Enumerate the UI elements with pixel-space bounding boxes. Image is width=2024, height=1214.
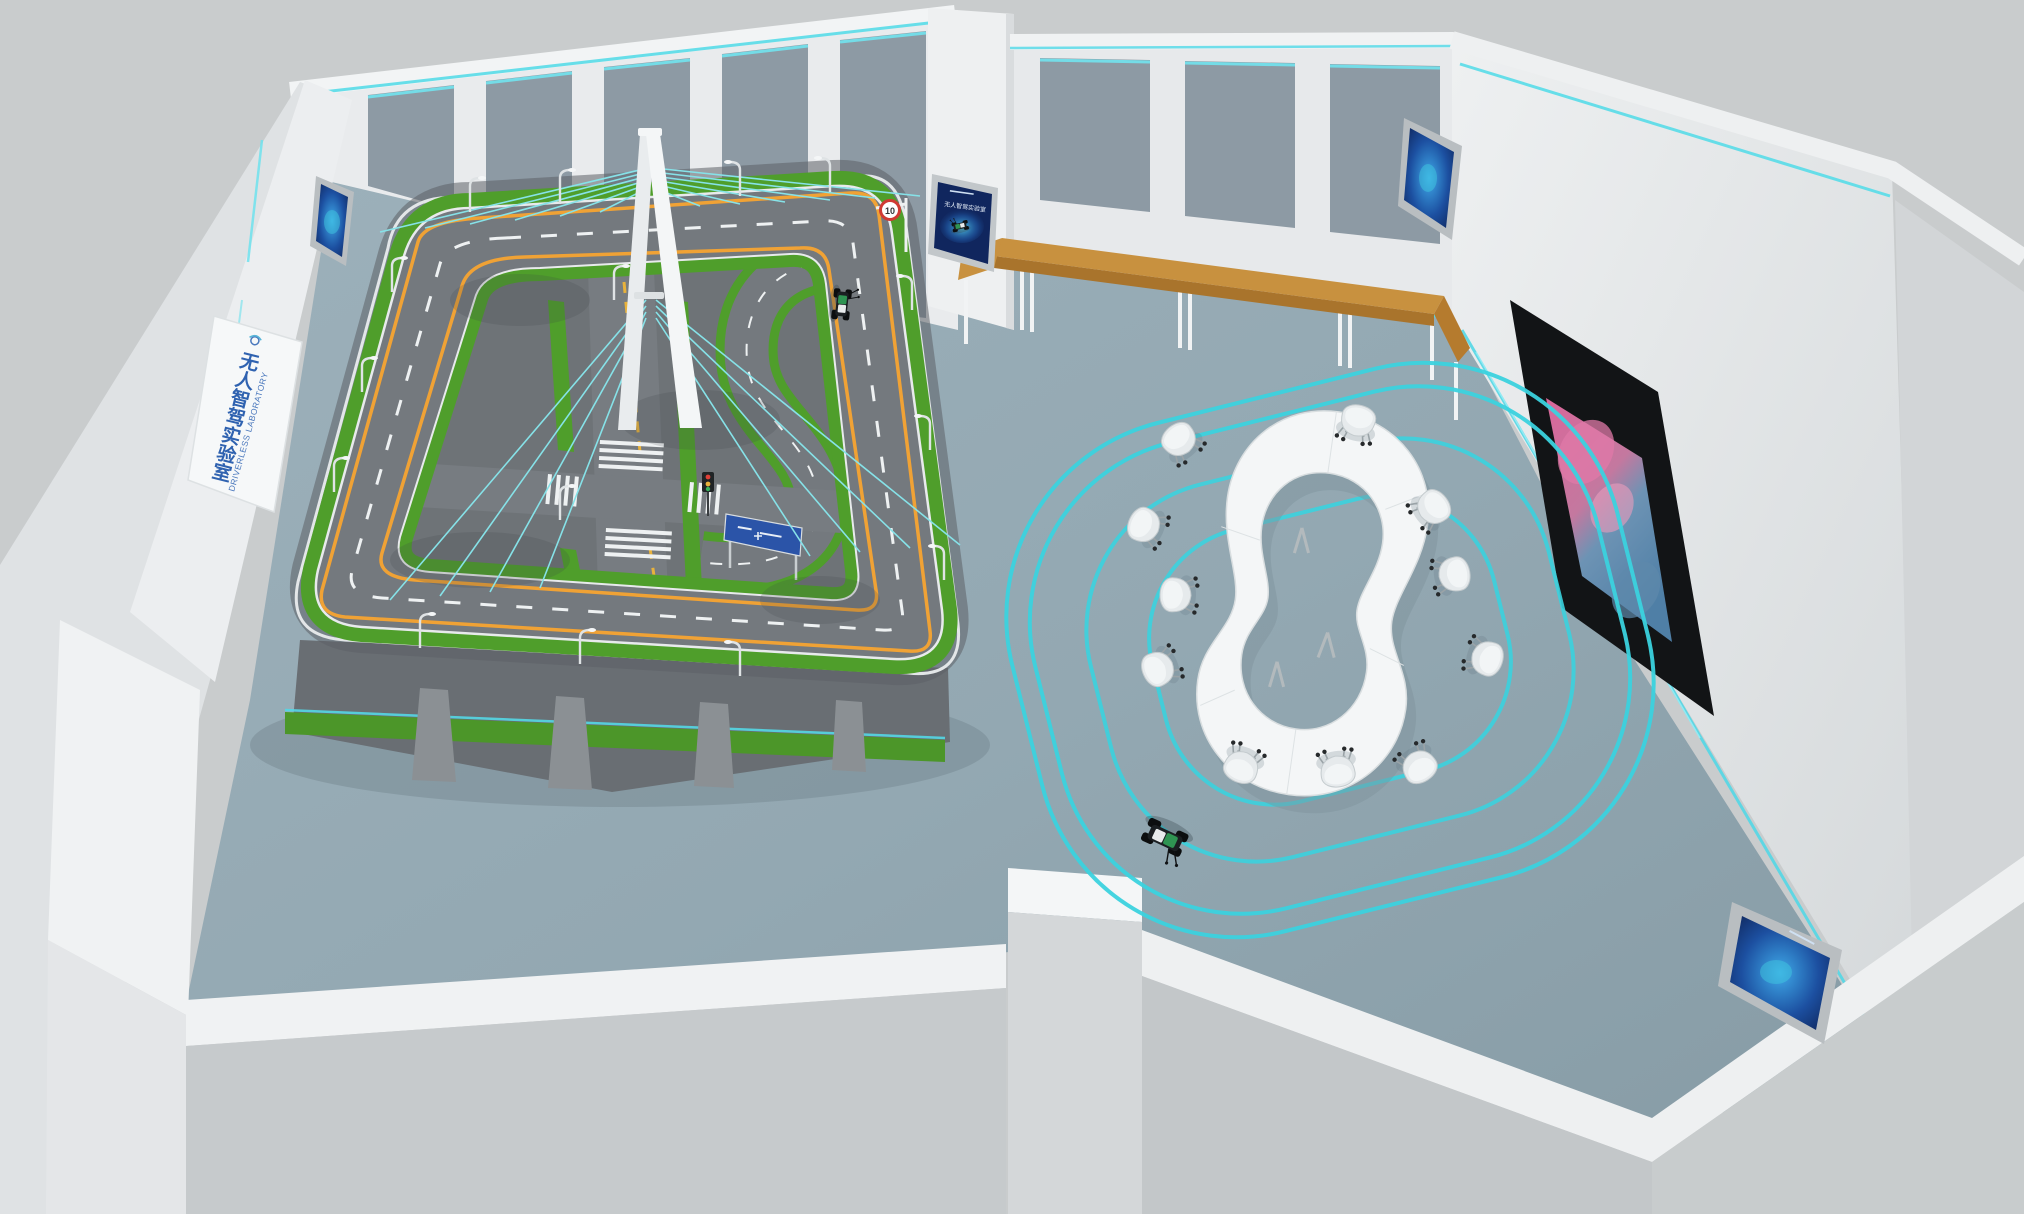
room-scene: 无人智驾实验室 DRIVERLESS LABORATORY [0,0,2024,1214]
corner-column [928,8,1014,330]
front-wall-pillar [1008,868,1142,1214]
lab-room-render: 无人智驾实验室 DRIVERLESS LABORATORY [0,0,2024,1214]
front-left-wall [46,620,200,1214]
speed-limit-value: 10 [885,206,895,216]
